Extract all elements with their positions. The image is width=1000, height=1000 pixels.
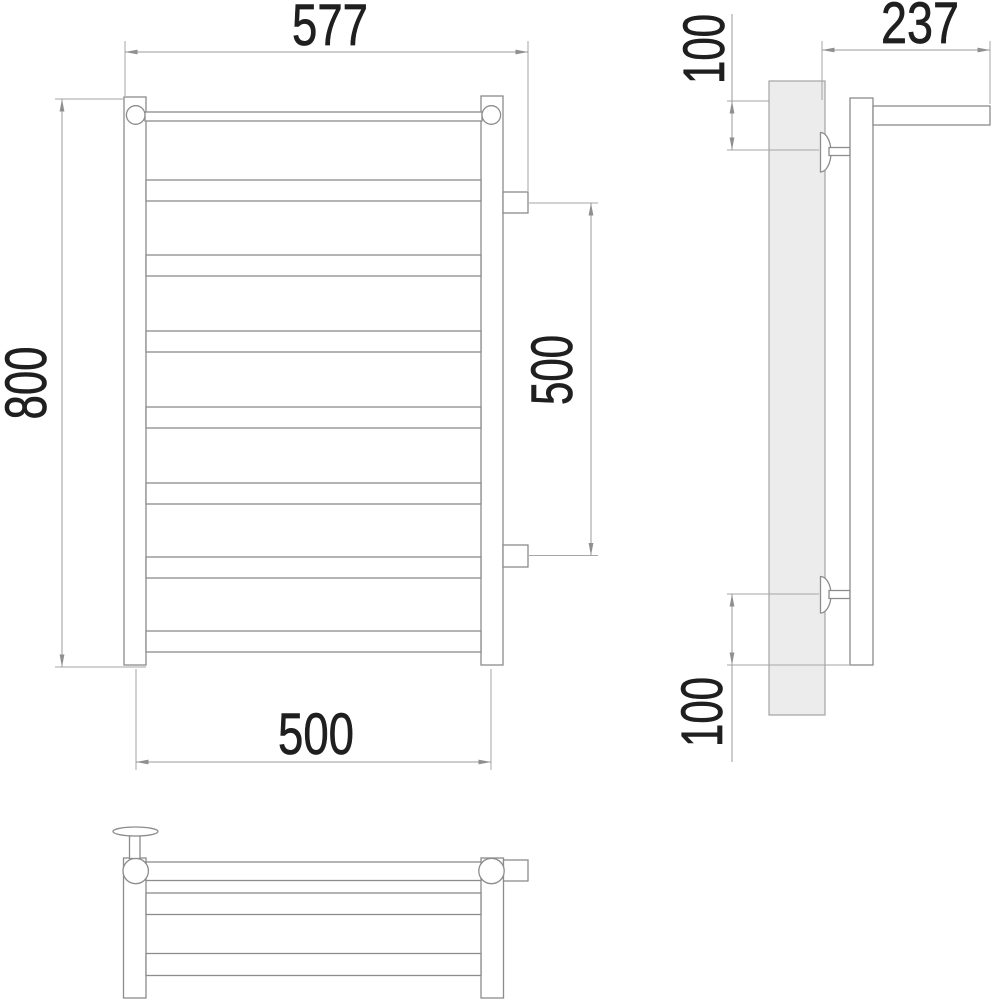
dim-depth-label: 237 (881, 0, 959, 56)
bottom-rung-strip-1 (146, 893, 481, 915)
front-rung-1 (146, 180, 481, 201)
dim-bottom-width-label: 500 (278, 702, 354, 767)
front-rung-6 (146, 557, 481, 578)
bottom-shelf-bar (146, 862, 481, 881)
side-view (769, 81, 990, 715)
front-shelf-bar (145, 112, 482, 121)
bottom-rung-strip-2 (146, 954, 481, 976)
dim-bottom-width: 500 (136, 669, 491, 770)
wall-bracket-bottom-stem (829, 591, 850, 599)
bottom-corner-fitting-left (123, 858, 148, 883)
front-right-post (481, 96, 503, 665)
front-rung-7 (146, 631, 481, 652)
wall-bracket-top-stem (829, 148, 850, 156)
front-corner-fitting-right (482, 106, 501, 125)
front-corner-fitting-left (126, 106, 145, 125)
side-post (850, 98, 873, 665)
front-left-post (124, 97, 146, 665)
air-vent-valve-stem (130, 836, 141, 859)
front-rung-2 (146, 255, 481, 276)
technical-drawing-page: 577 800 500 500 237 (0, 0, 1000, 1000)
dim-depth: 237 (822, 0, 990, 104)
dim-connection-spacing-label: 500 (520, 335, 585, 405)
front-connection-stub-top (503, 192, 528, 213)
front-view (124, 96, 528, 665)
front-rung-3 (146, 331, 481, 352)
bottom-corner-fitting-right (479, 858, 504, 883)
dim-overall-height-label: 800 (0, 347, 59, 420)
front-connection-stub-bottom (503, 545, 528, 567)
dim-overall-width-label: 577 (292, 0, 368, 58)
side-shelf-bar (873, 106, 990, 125)
dim-connection-spacing: 500 (520, 203, 598, 556)
front-rung-4 (146, 407, 481, 428)
towel-rail-drawing: 577 800 500 500 237 (0, 0, 1000, 1000)
dim-bottom-offset-label: 100 (670, 677, 735, 747)
dim-top-offset-label: 100 (672, 14, 737, 84)
air-vent-valve-handle (113, 827, 158, 836)
dim-overall-width: 577 (125, 0, 528, 191)
bottom-connection-stub (504, 860, 529, 881)
front-rung-5 (146, 483, 481, 504)
bottom-view (113, 827, 528, 998)
wall-panel (769, 81, 825, 715)
